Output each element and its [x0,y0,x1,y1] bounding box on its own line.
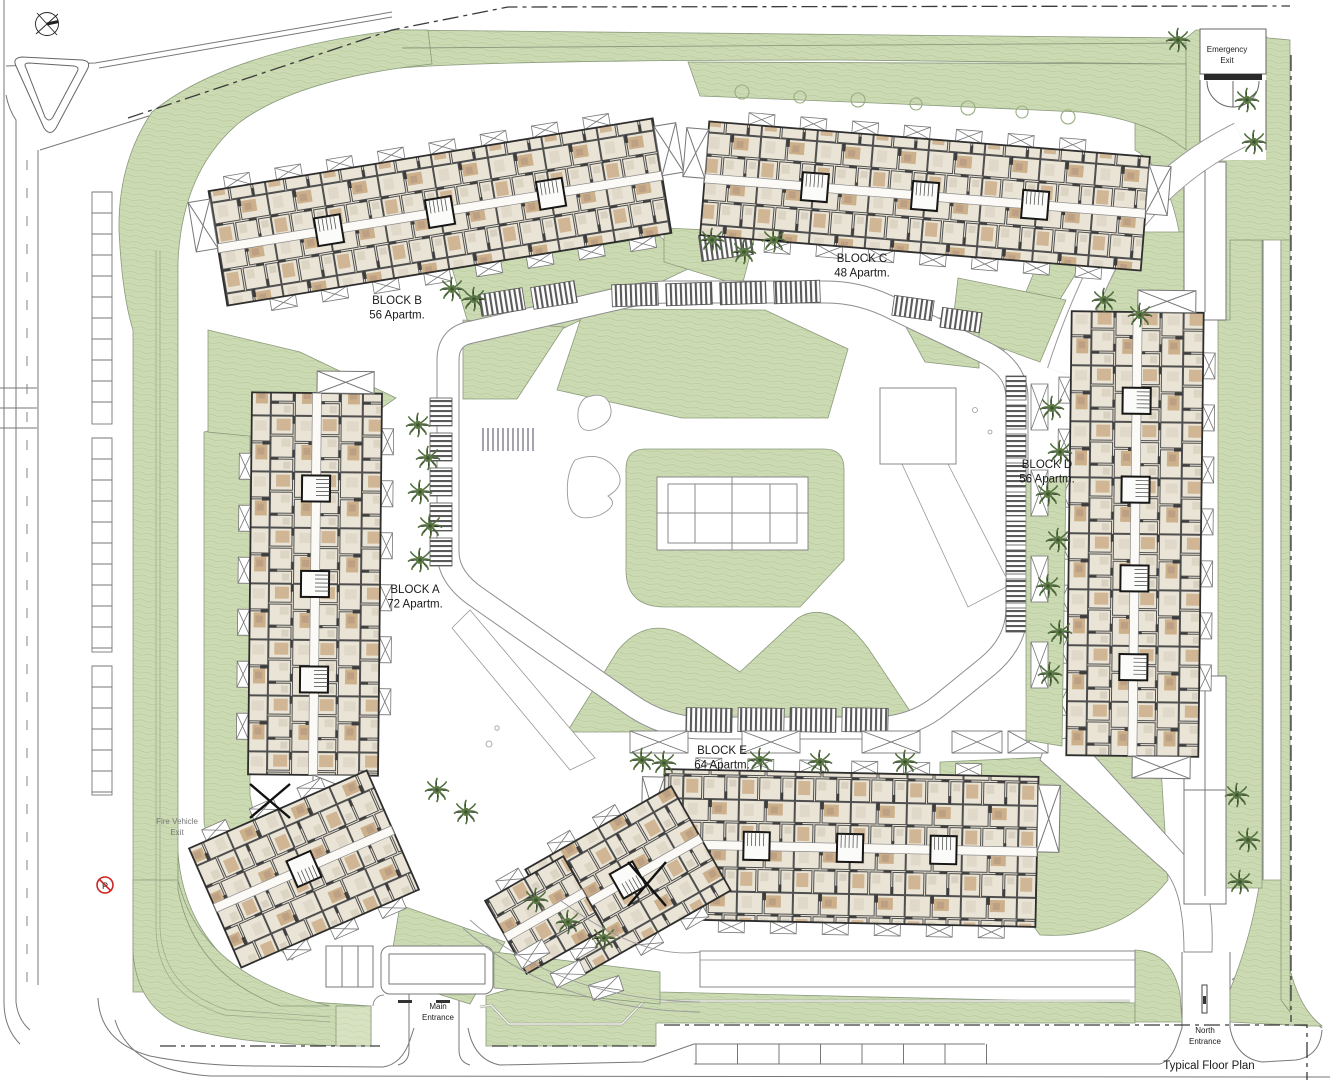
svg-text:Fire Vehicle: Fire Vehicle [156,817,198,826]
svg-text:Exit: Exit [1220,56,1234,65]
svg-text:North: North [1195,1026,1215,1035]
svg-text:BLOCK E: BLOCK E [697,745,747,757]
svg-text:BLOCK D: BLOCK D [1022,459,1073,471]
svg-text:48 Apartm.: 48 Apartm. [834,268,890,280]
svg-text:72 Apartm.: 72 Apartm. [387,599,443,611]
svg-text:Entrance: Entrance [1189,1037,1222,1046]
svg-text:Main: Main [429,1002,446,1011]
svg-text:Emergency: Emergency [1207,45,1247,54]
svg-text:64 Apartm.: 64 Apartm. [694,760,750,772]
svg-text:Entrance: Entrance [422,1013,455,1022]
svg-text:56 Apartm.: 56 Apartm. [1019,474,1075,486]
svg-text:BLOCK C: BLOCK C [837,253,888,265]
svg-text:56 Apartm.: 56 Apartm. [369,310,425,322]
svg-text:Typical Floor Plan: Typical Floor Plan [1163,1060,1254,1072]
svg-text:BLOCK B: BLOCK B [372,295,422,307]
svg-text:BLOCK A: BLOCK A [390,584,440,596]
svg-text:Exit: Exit [170,828,184,837]
